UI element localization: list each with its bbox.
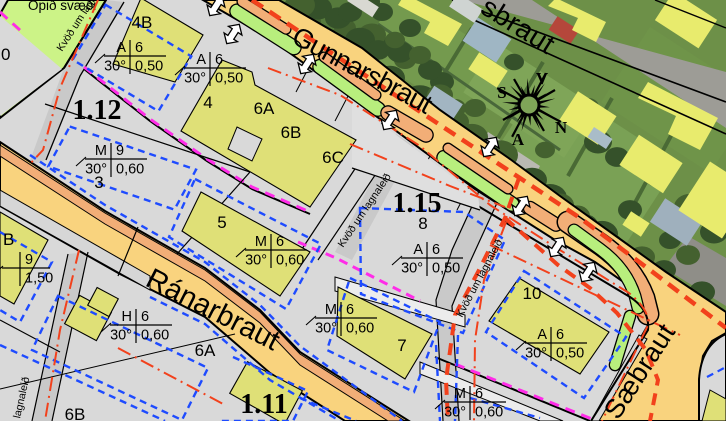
svg-text:6: 6 <box>135 40 143 56</box>
svg-text:N: N <box>555 118 568 137</box>
svg-text:9: 9 <box>25 252 33 268</box>
svg-text:1.11: 1.11 <box>240 389 287 420</box>
svg-text:1.15: 1.15 <box>393 188 442 219</box>
svg-text:30°: 30° <box>85 162 107 178</box>
svg-text:4B: 4B <box>132 13 153 32</box>
svg-text:30°: 30° <box>184 71 206 87</box>
svg-text:30°: 30° <box>525 346 547 362</box>
svg-text:30°: 30° <box>401 261 423 277</box>
svg-text:S: S <box>497 83 506 102</box>
svg-text:0: 0 <box>1 45 10 64</box>
svg-text:6: 6 <box>346 302 354 318</box>
svg-text:A: A <box>116 40 126 56</box>
svg-text:M: M <box>95 143 107 159</box>
svg-text:10: 10 <box>523 284 542 303</box>
svg-text:A: A <box>512 130 525 149</box>
svg-text:8: 8 <box>418 214 427 233</box>
svg-text:0,60: 0,60 <box>276 253 304 269</box>
svg-text:M: M <box>255 234 267 250</box>
svg-text:6B: 6B <box>65 405 86 421</box>
svg-text:M: M <box>454 386 466 402</box>
svg-text:6C: 6C <box>322 148 344 167</box>
svg-text:30°: 30° <box>104 59 126 75</box>
svg-text:5: 5 <box>217 213 226 232</box>
svg-text:9: 9 <box>116 143 124 159</box>
svg-text:A: A <box>413 242 423 258</box>
svg-text:30°: 30° <box>444 405 466 421</box>
svg-text:0,60: 0,60 <box>475 405 503 421</box>
svg-text:0,50: 0,50 <box>215 71 243 87</box>
svg-text:6: 6 <box>432 242 440 258</box>
svg-text:A: A <box>537 327 547 343</box>
svg-text:6A: 6A <box>254 99 275 118</box>
svg-text:6A: 6A <box>195 341 216 360</box>
svg-text:0,60: 0,60 <box>346 321 374 337</box>
svg-text:A: A <box>196 52 206 68</box>
svg-text:30°: 30° <box>110 328 132 344</box>
svg-text:6: 6 <box>141 309 149 325</box>
svg-text:M: M <box>325 302 337 318</box>
svg-text:6B: 6B <box>281 123 302 142</box>
svg-text:H: H <box>122 309 132 325</box>
svg-text:0,50: 0,50 <box>432 261 460 277</box>
svg-text:1.12: 1.12 <box>73 95 122 126</box>
svg-text:0,60: 0,60 <box>116 162 144 178</box>
svg-text:0,50: 0,50 <box>135 59 163 75</box>
svg-text:0,50: 0,50 <box>556 346 584 362</box>
svg-text:V: V <box>536 69 549 88</box>
svg-text:30°: 30° <box>245 253 267 269</box>
svg-text:6: 6 <box>276 234 284 250</box>
svg-text:7: 7 <box>397 336 406 355</box>
svg-text:B: B <box>3 230 14 249</box>
svg-text:30°: 30° <box>315 321 337 337</box>
svg-text:0,60: 0,60 <box>141 328 169 344</box>
svg-text:4: 4 <box>203 93 212 112</box>
svg-text:1,50: 1,50 <box>25 271 53 287</box>
svg-text:6: 6 <box>215 52 223 68</box>
svg-text:6: 6 <box>475 386 483 402</box>
svg-text:6: 6 <box>556 327 564 343</box>
